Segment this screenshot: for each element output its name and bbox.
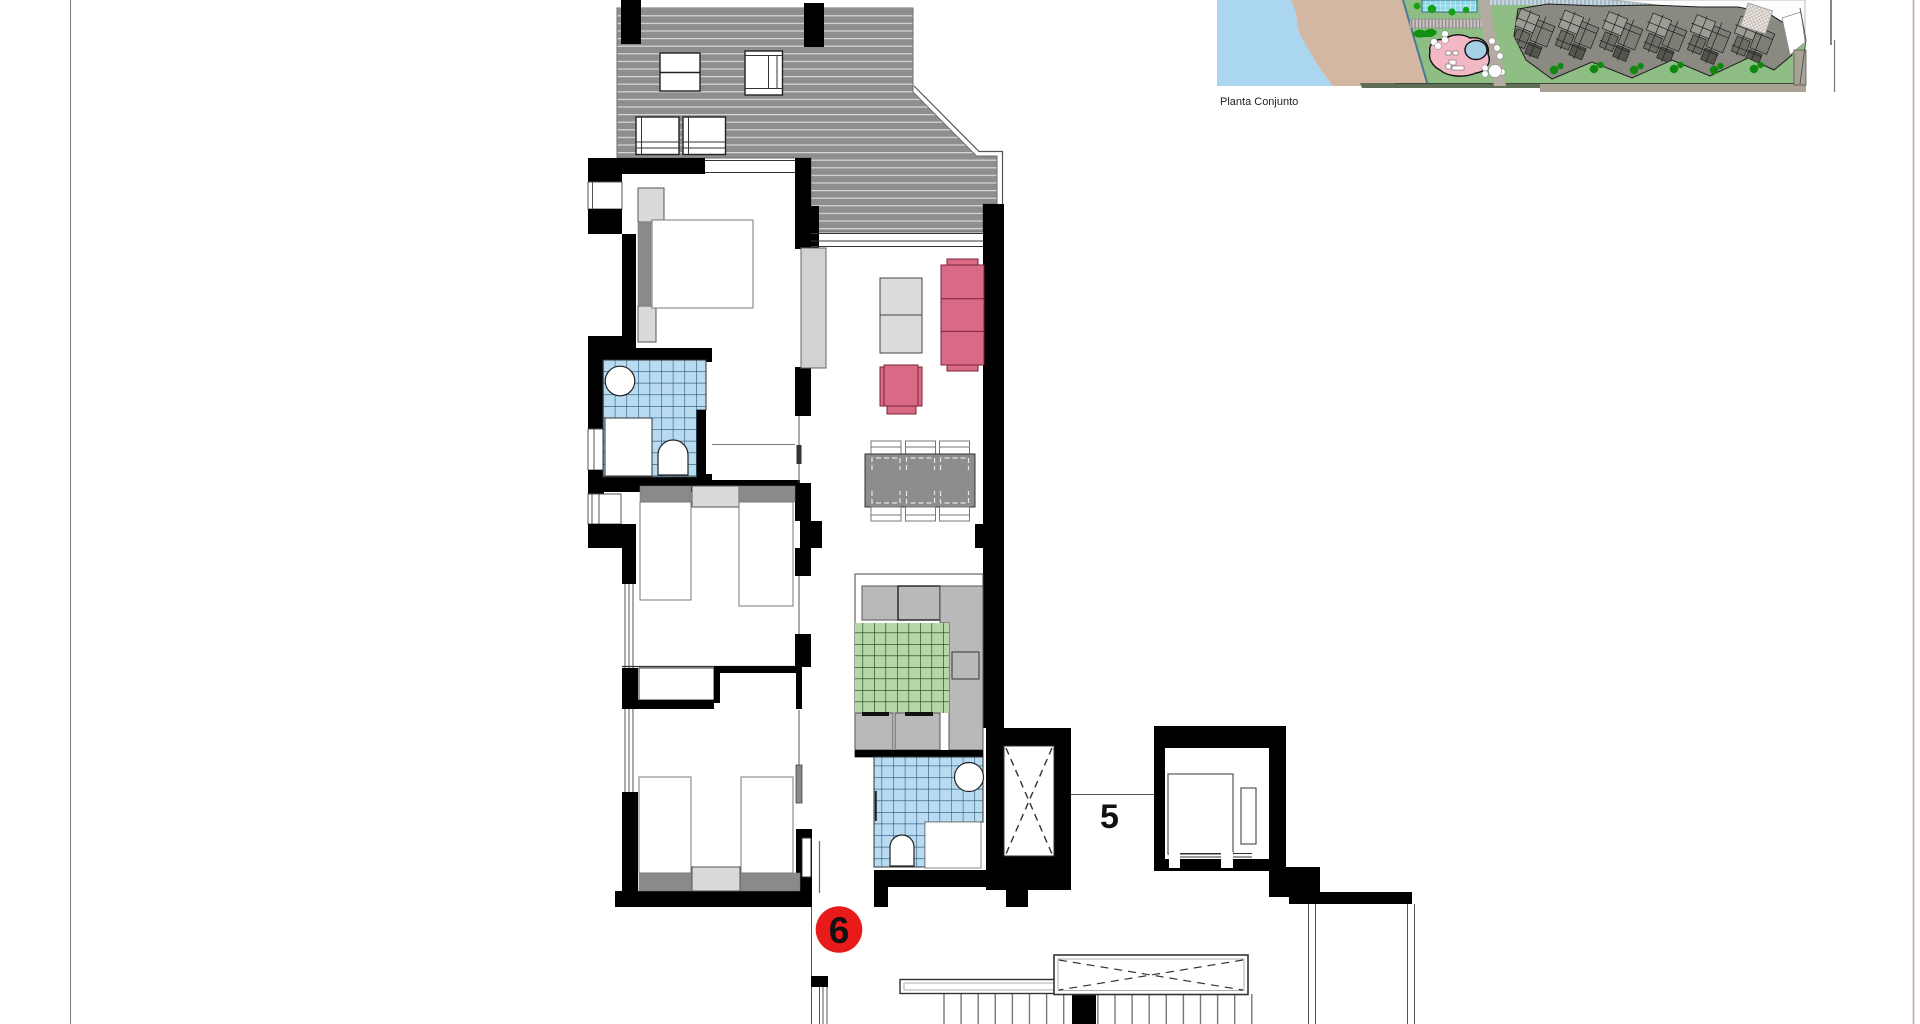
svg-text:6: 6: [829, 910, 850, 951]
svg-text:5: 5: [1100, 798, 1119, 836]
svg-text:Planta Conjunto: Planta Conjunto: [1220, 96, 1298, 108]
